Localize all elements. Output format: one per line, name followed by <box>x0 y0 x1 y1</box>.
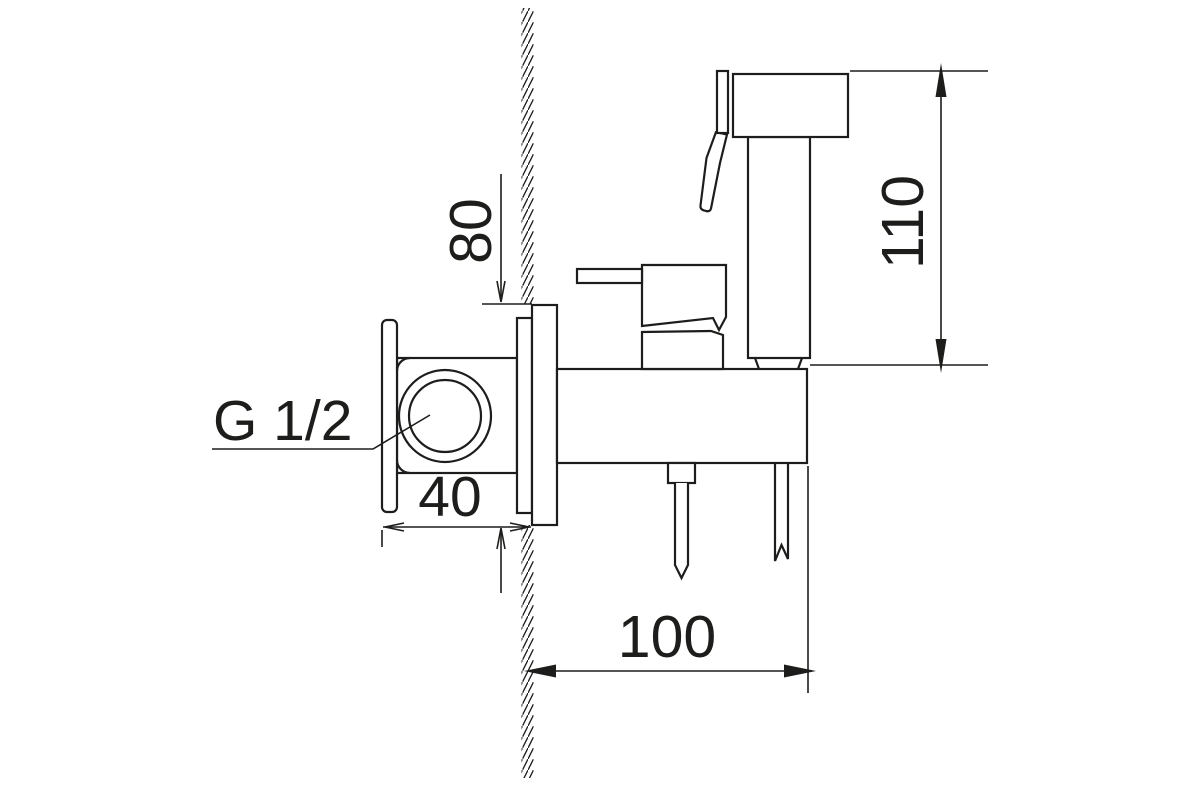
outlet-needle <box>675 483 688 578</box>
outlet-spout <box>668 463 695 578</box>
wall-plates <box>517 305 557 525</box>
dim-80-label: 80 <box>438 198 504 264</box>
hose-stub <box>775 463 788 561</box>
sprayer-trigger <box>700 132 727 211</box>
trigger-pivot-plate <box>717 71 728 133</box>
thread-port-inner-circle <box>409 380 481 452</box>
dim-100-arrow-right <box>784 665 816 678</box>
mixer-handle <box>577 265 726 369</box>
handle-lever <box>577 269 642 283</box>
bidet-mixer-drawing: 80 110 40 100 G 1/2 <box>0 0 1200 800</box>
cartridge-base <box>642 331 723 369</box>
flush-plate <box>517 318 532 513</box>
thread-label: G 1/2 <box>213 389 352 453</box>
dim-110-label: 110 <box>870 175 936 269</box>
dim-110-arrow-down <box>936 339 947 373</box>
wall-hatch-upper <box>522 8 534 304</box>
handle-cap <box>642 265 726 330</box>
dimension-100: 100 <box>524 466 816 693</box>
nozzle-foot-right <box>798 358 802 369</box>
mixer-body <box>557 369 807 463</box>
outlet-nut <box>668 463 695 483</box>
dim-40-label: 40 <box>418 465 481 529</box>
escutcheon-plate <box>532 305 557 525</box>
sprayer-head <box>733 74 848 137</box>
dim-100-label: 100 <box>618 604 716 670</box>
dimension-40: 40 <box>382 465 531 547</box>
nozzle-foot-left <box>755 358 759 369</box>
technical-drawing-canvas: 80 110 40 100 G 1/2 <box>0 0 1200 800</box>
rough-in-flange <box>382 320 397 512</box>
dim-110-arrow-up <box>936 63 947 97</box>
sprayer-barrel <box>748 137 810 358</box>
wall-hatch-lower <box>522 525 534 778</box>
